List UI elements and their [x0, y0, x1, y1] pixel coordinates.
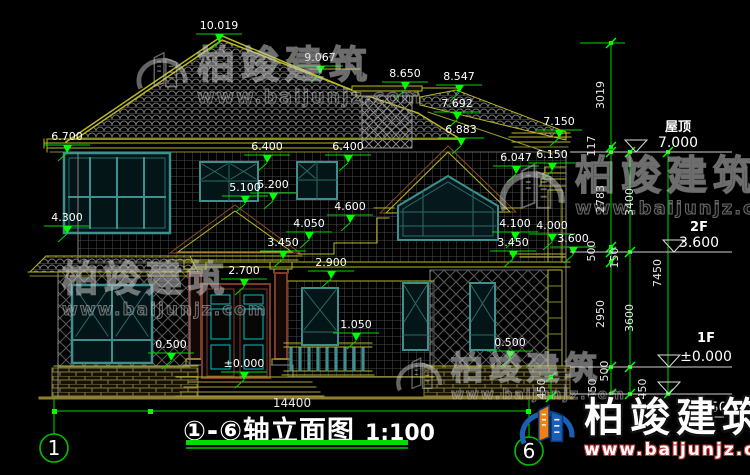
- chain-dim-label: 117: [585, 136, 598, 157]
- dim-marker: ±0.000: [221, 357, 267, 388]
- svg-text:6.400: 6.400: [332, 140, 364, 153]
- window-porch: [302, 288, 338, 345]
- svg-text:4.600: 4.600: [334, 200, 366, 213]
- svg-text:5.200: 5.200: [257, 178, 289, 191]
- svg-text:9.067: 9.067: [304, 51, 336, 64]
- elevation-drawing: 14400 1 6 10.0199.0678.6508.5477.6927.15…: [0, 0, 750, 475]
- svg-text:2.700: 2.700: [228, 264, 260, 277]
- chain-dim-label: 3019: [594, 81, 607, 109]
- svg-text:±0.000: ±0.000: [680, 349, 732, 365]
- svg-text:6.883: 6.883: [445, 123, 477, 136]
- chain-dim-label: 3600: [623, 304, 636, 332]
- chain-dim-label: 450: [535, 379, 548, 400]
- svg-text:1.050: 1.050: [340, 318, 372, 331]
- chain-dim-label: 500: [585, 241, 598, 262]
- svg-text:6.047: 6.047: [500, 151, 532, 164]
- window-1f-right-b: [470, 283, 495, 350]
- chain-dim-label: 3400: [623, 188, 636, 216]
- svg-text:2.900: 2.900: [315, 256, 347, 269]
- svg-text:4.050: 4.050: [293, 217, 325, 230]
- svg-text:7.692: 7.692: [441, 97, 473, 110]
- svg-text:6.150: 6.150: [536, 148, 568, 161]
- svg-text:1F: 1F: [697, 331, 715, 346]
- title-underline-thin: [186, 447, 408, 449]
- svg-text:3.450: 3.450: [497, 236, 529, 249]
- svg-text:7.150: 7.150: [543, 115, 575, 128]
- canopy-roof: [30, 256, 198, 272]
- svg-text:8.650: 8.650: [389, 67, 421, 80]
- svg-text:屋顶: 屋顶: [665, 120, 691, 135]
- svg-text:5.100: 5.100: [229, 181, 261, 194]
- chain-dim-label: 7450: [651, 259, 664, 287]
- window-2f-right: [297, 162, 337, 199]
- window-1f-large: [72, 285, 152, 363]
- svg-text:4.300: 4.300: [51, 211, 83, 224]
- svg-text:3.600: 3.600: [679, 235, 719, 251]
- axis-bubble-6-label: 6: [523, 439, 536, 463]
- chain-dim-label: 450: [586, 379, 599, 400]
- overall-width-dim: 14400: [273, 396, 311, 410]
- chain-dim-label: 150: [608, 248, 621, 269]
- svg-text:7.000: 7.000: [658, 135, 698, 151]
- chain-dim-label: 2950: [594, 300, 607, 328]
- svg-text:6.700: 6.700: [51, 130, 83, 143]
- chimney: [352, 86, 422, 148]
- svg-text:0.500: 0.500: [494, 336, 526, 349]
- title-underline-thick: [186, 440, 408, 445]
- svg-text:10.019: 10.019: [200, 19, 239, 32]
- chain-dim-label: 500: [598, 361, 611, 382]
- level-marker: 1F±0.000: [570, 331, 732, 367]
- svg-text:6.400: 6.400: [251, 140, 283, 153]
- axis-bubble-1-label: 1: [48, 436, 61, 460]
- svg-text:4.100: 4.100: [499, 217, 531, 230]
- chain-dim-label: 2783: [594, 185, 607, 213]
- svg-text:-0.450: -0.450: [682, 400, 727, 416]
- chain-dim-label: 450: [636, 379, 649, 400]
- cad-elevation-screenshot: 14400 1 6 10.0199.0678.6508.5477.6927.15…: [0, 0, 750, 475]
- svg-text:4.000: 4.000: [536, 219, 568, 232]
- svg-text:3.450: 3.450: [267, 236, 299, 249]
- dim-marker: 7.150: [536, 115, 582, 146]
- svg-text:2F: 2F: [690, 220, 708, 235]
- svg-text:8.547: 8.547: [443, 70, 475, 83]
- svg-text:0.500: 0.500: [155, 338, 187, 351]
- window-1f-right-a: [403, 283, 428, 350]
- svg-text:±0.000: ±0.000: [224, 357, 265, 370]
